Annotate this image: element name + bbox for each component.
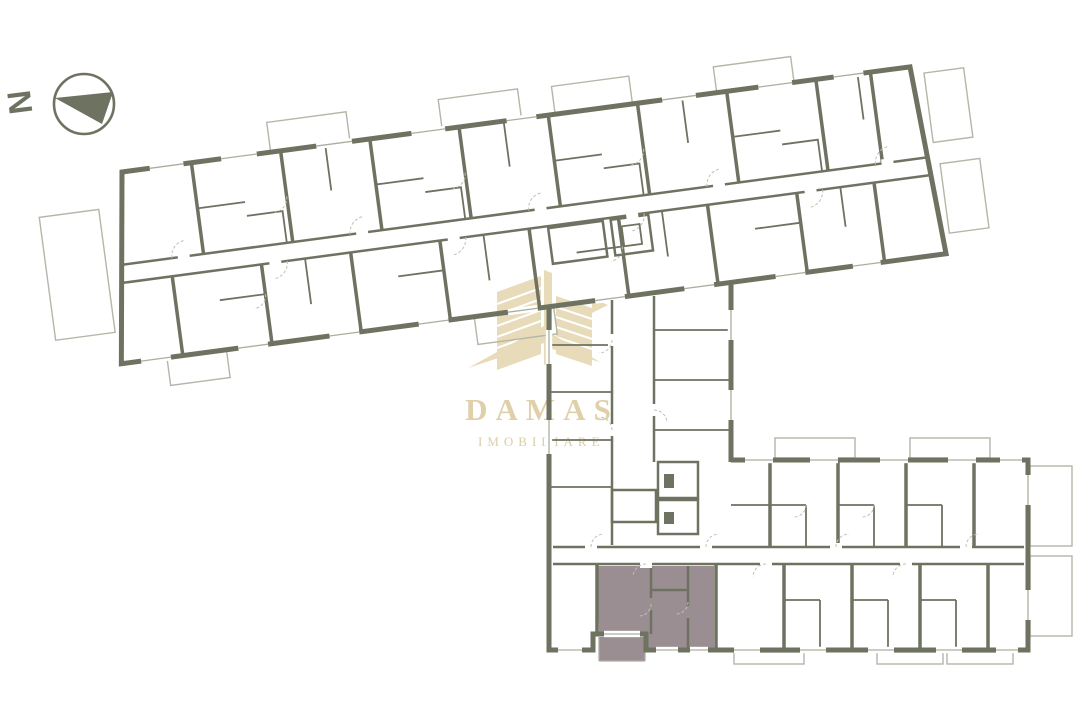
north-wing	[31, 30, 996, 400]
north-stairwell	[548, 221, 607, 264]
highlighted-apartment-balcony	[599, 637, 645, 661]
north-arrow-icon	[54, 74, 114, 134]
north-wing-doors	[166, 116, 902, 318]
north-wing-balconies	[31, 30, 996, 400]
compass-needle	[55, 92, 113, 124]
north-elevator	[611, 215, 653, 256]
south-wing	[549, 438, 1072, 664]
north-wing-windows	[116, 70, 889, 364]
north-label: N	[0, 70, 44, 117]
south-stairwell	[612, 490, 656, 522]
floor-plan	[0, 0, 1080, 720]
floor-plan-page: DAMAS IMOBILIARE	[0, 0, 1080, 720]
